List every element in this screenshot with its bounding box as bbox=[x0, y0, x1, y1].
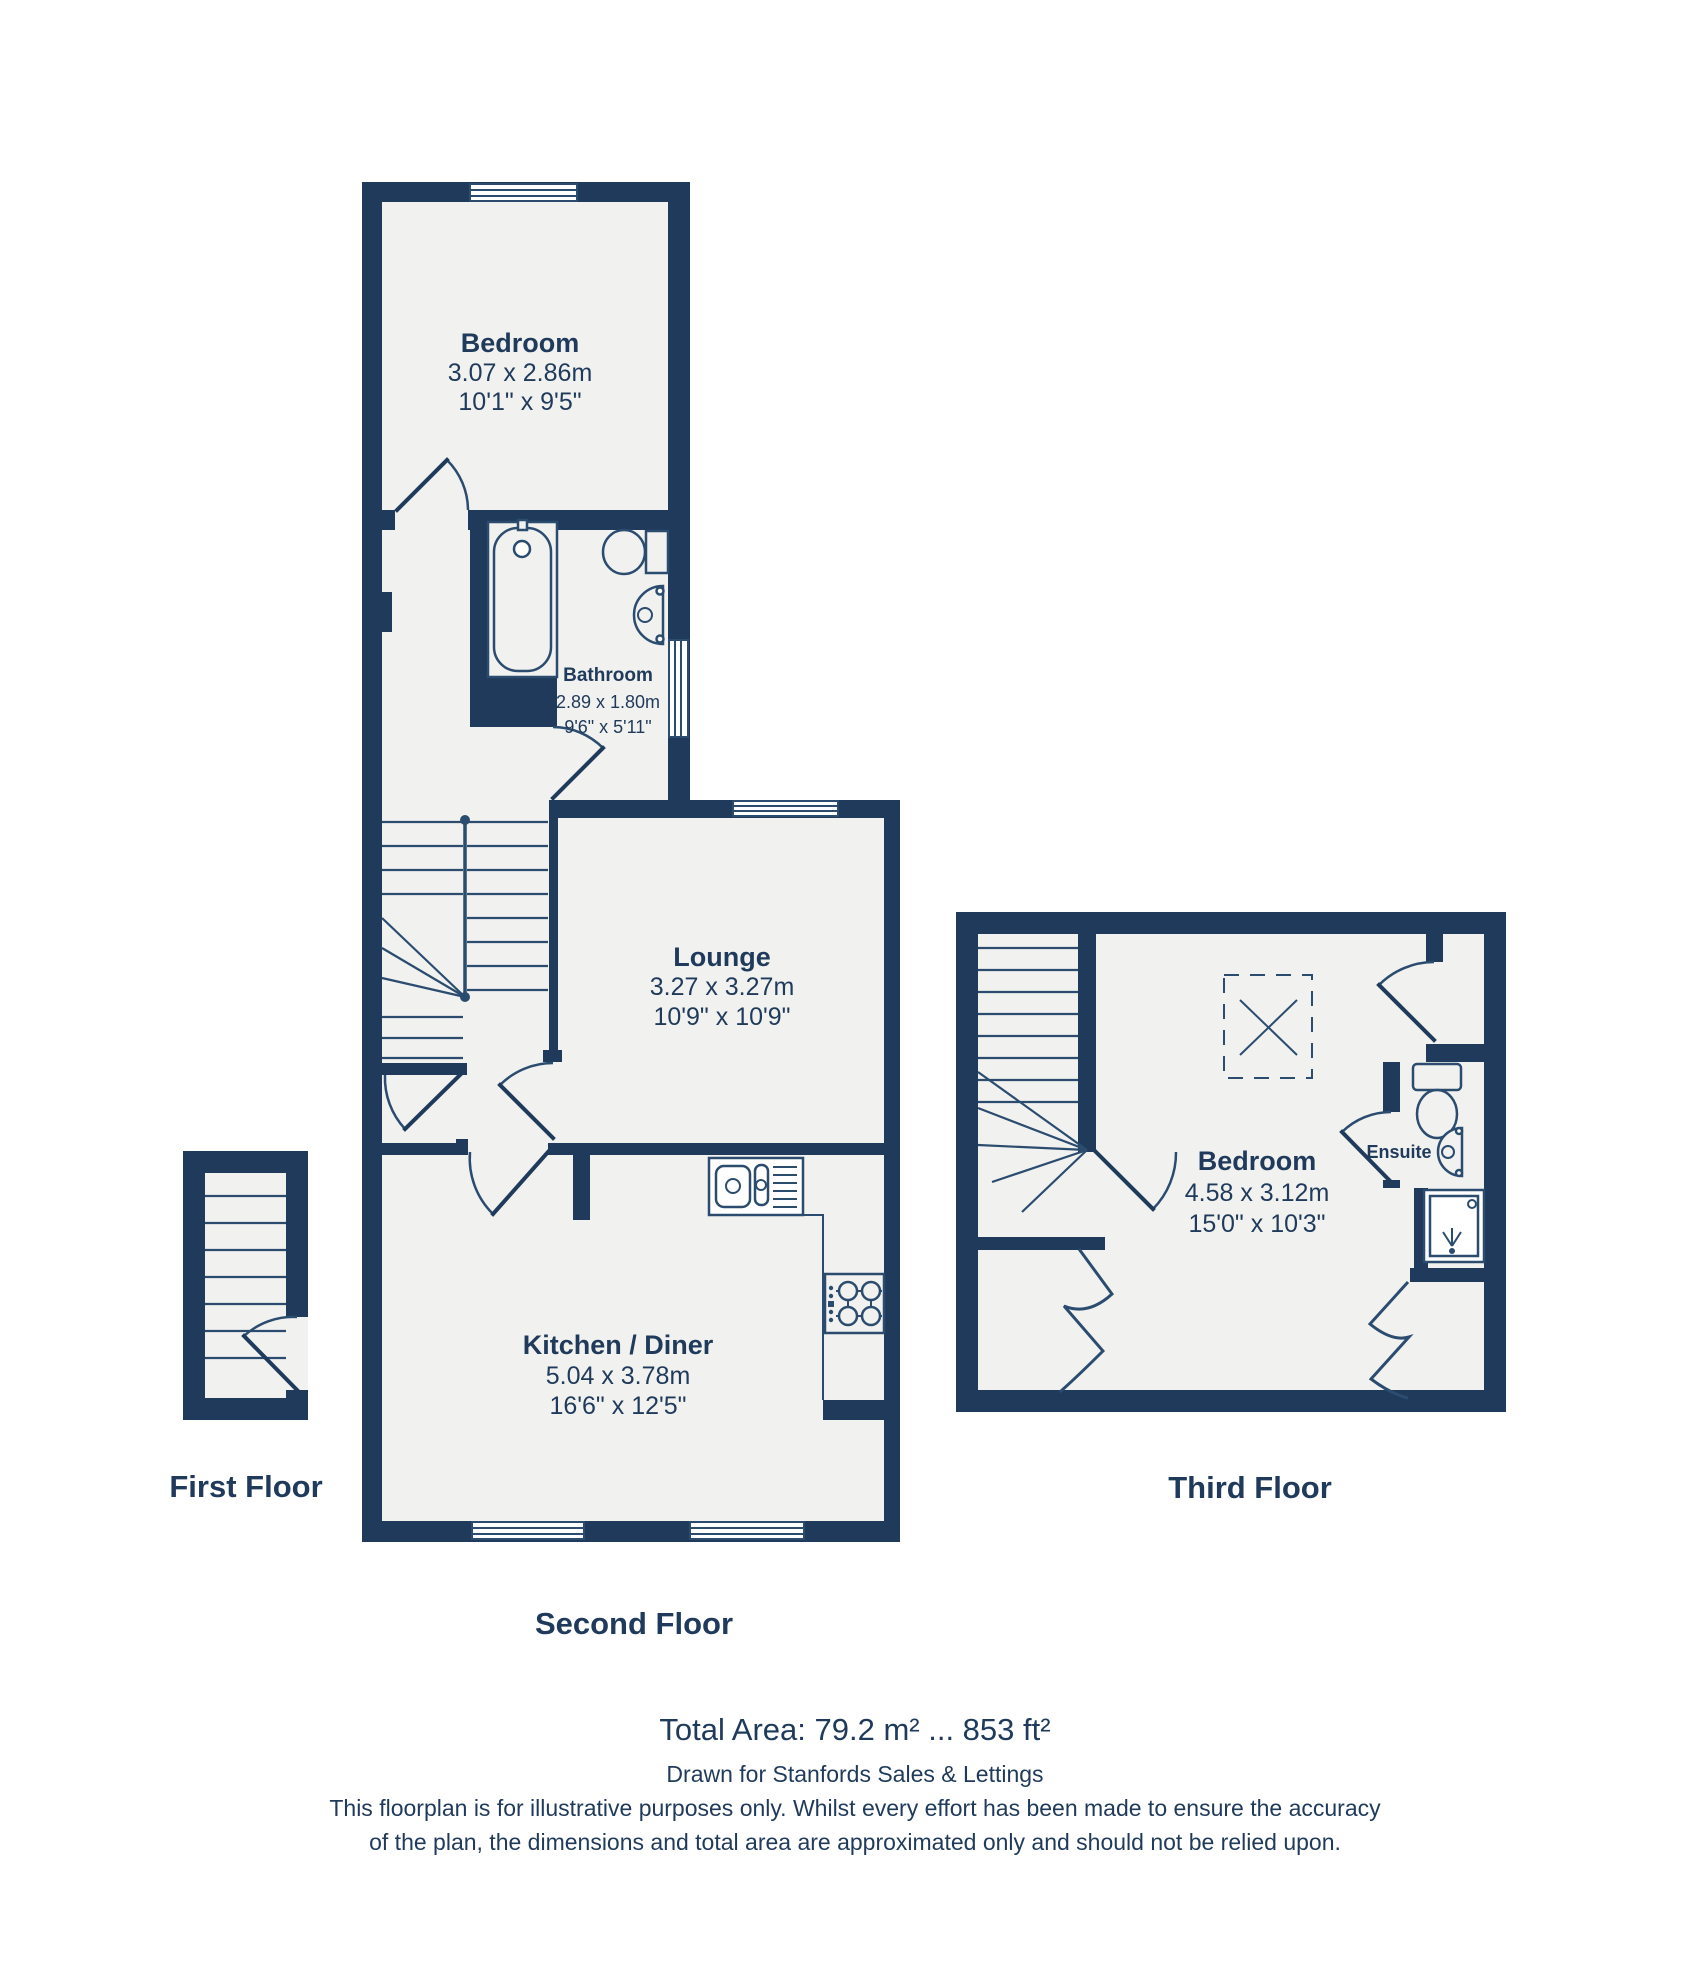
floorplan-drawing: Bedroom 3.07 x 2.86m 10'1" x 9'5" Bathro… bbox=[0, 0, 1707, 1979]
bedroom3-metric: 4.58 x 3.12m bbox=[1185, 1179, 1330, 1207]
kitchen-window-right bbox=[690, 1522, 804, 1539]
bedroom-name: Bedroom bbox=[461, 328, 580, 358]
ensuite-toilet-icon bbox=[1413, 1064, 1461, 1138]
drawn-for-text: Drawn for Stanfords Sales & Lettings bbox=[666, 1761, 1043, 1787]
third-floor-title: Third Floor bbox=[1168, 1470, 1332, 1505]
second-floor-title: Second Floor bbox=[535, 1606, 733, 1641]
counter-end-wall bbox=[823, 1400, 884, 1420]
toilet-icon bbox=[603, 530, 668, 574]
bathroom-label: Bathroom 2.89 x 1.80m 9'6" x 5'11" bbox=[556, 665, 660, 737]
kitchen-label: Kitchen / Diner 5.04 x 3.78m 16'6" x 12'… bbox=[523, 1330, 714, 1420]
kitchen-window-left bbox=[472, 1522, 584, 1539]
footer: Total Area: 79.2 m² ... 853 ft² Drawn fo… bbox=[329, 1712, 1381, 1855]
bedroom-window bbox=[470, 184, 577, 201]
bathroom-metric: 2.89 x 1.80m bbox=[556, 692, 660, 712]
bedroom3-imperial: 15'0" x 10'3" bbox=[1188, 1210, 1325, 1238]
bedroom-imperial: 10'1" x 9'5" bbox=[458, 388, 581, 416]
lounge-imperial: 10'9" x 10'9" bbox=[653, 1003, 790, 1031]
ensuite-label: Ensuite bbox=[1366, 1142, 1431, 1162]
disclaimer-line1: This floorplan is for illustrative purpo… bbox=[329, 1795, 1381, 1821]
kitchen-metric: 5.04 x 3.78m bbox=[546, 1362, 691, 1390]
bathtub-icon bbox=[488, 520, 557, 677]
bedroom-metric: 3.07 x 2.86m bbox=[448, 359, 593, 387]
hob-icon bbox=[825, 1274, 884, 1333]
first-floor-title: First Floor bbox=[169, 1469, 322, 1504]
third-floor-plan: Bedroom 4.58 x 3.12m 15'0" x 10'3" Ensui… bbox=[956, 912, 1506, 1412]
bathroom-name: Bathroom bbox=[563, 665, 653, 686]
bedroom3-name: Bedroom bbox=[1198, 1146, 1317, 1176]
lounge-window bbox=[733, 801, 838, 816]
lounge-name: Lounge bbox=[673, 942, 770, 972]
kitchen-imperial: 16'6" x 12'5" bbox=[549, 1392, 686, 1420]
first-floor-plan bbox=[183, 1151, 308, 1420]
disclaimer-line2: of the plan, the dimensions and total ar… bbox=[369, 1829, 1341, 1855]
landing-floor bbox=[382, 530, 470, 677]
floorplan-page: Bedroom 3.07 x 2.86m 10'1" x 9'5" Bathro… bbox=[0, 0, 1707, 1979]
bathroom-imperial: 9'6" x 5'11" bbox=[564, 717, 651, 737]
bedroom3-label: Bedroom 4.58 x 3.12m 15'0" x 10'3" bbox=[1185, 1146, 1330, 1238]
bedroom-label: Bedroom 3.07 x 2.86m 10'1" x 9'5" bbox=[448, 328, 593, 416]
total-area-text: Total Area: 79.2 m² ... 853 ft² bbox=[659, 1712, 1050, 1747]
second-floor-plan: Bedroom 3.07 x 2.86m 10'1" x 9'5" Bathro… bbox=[362, 182, 900, 1542]
kitchen-name: Kitchen / Diner bbox=[523, 1330, 714, 1360]
lounge-metric: 3.27 x 3.27m bbox=[650, 973, 795, 1001]
shower-icon bbox=[1424, 1190, 1484, 1262]
kitchen-sink-icon bbox=[709, 1158, 803, 1215]
chimney-nib bbox=[382, 592, 392, 632]
bathroom-window bbox=[669, 640, 688, 737]
